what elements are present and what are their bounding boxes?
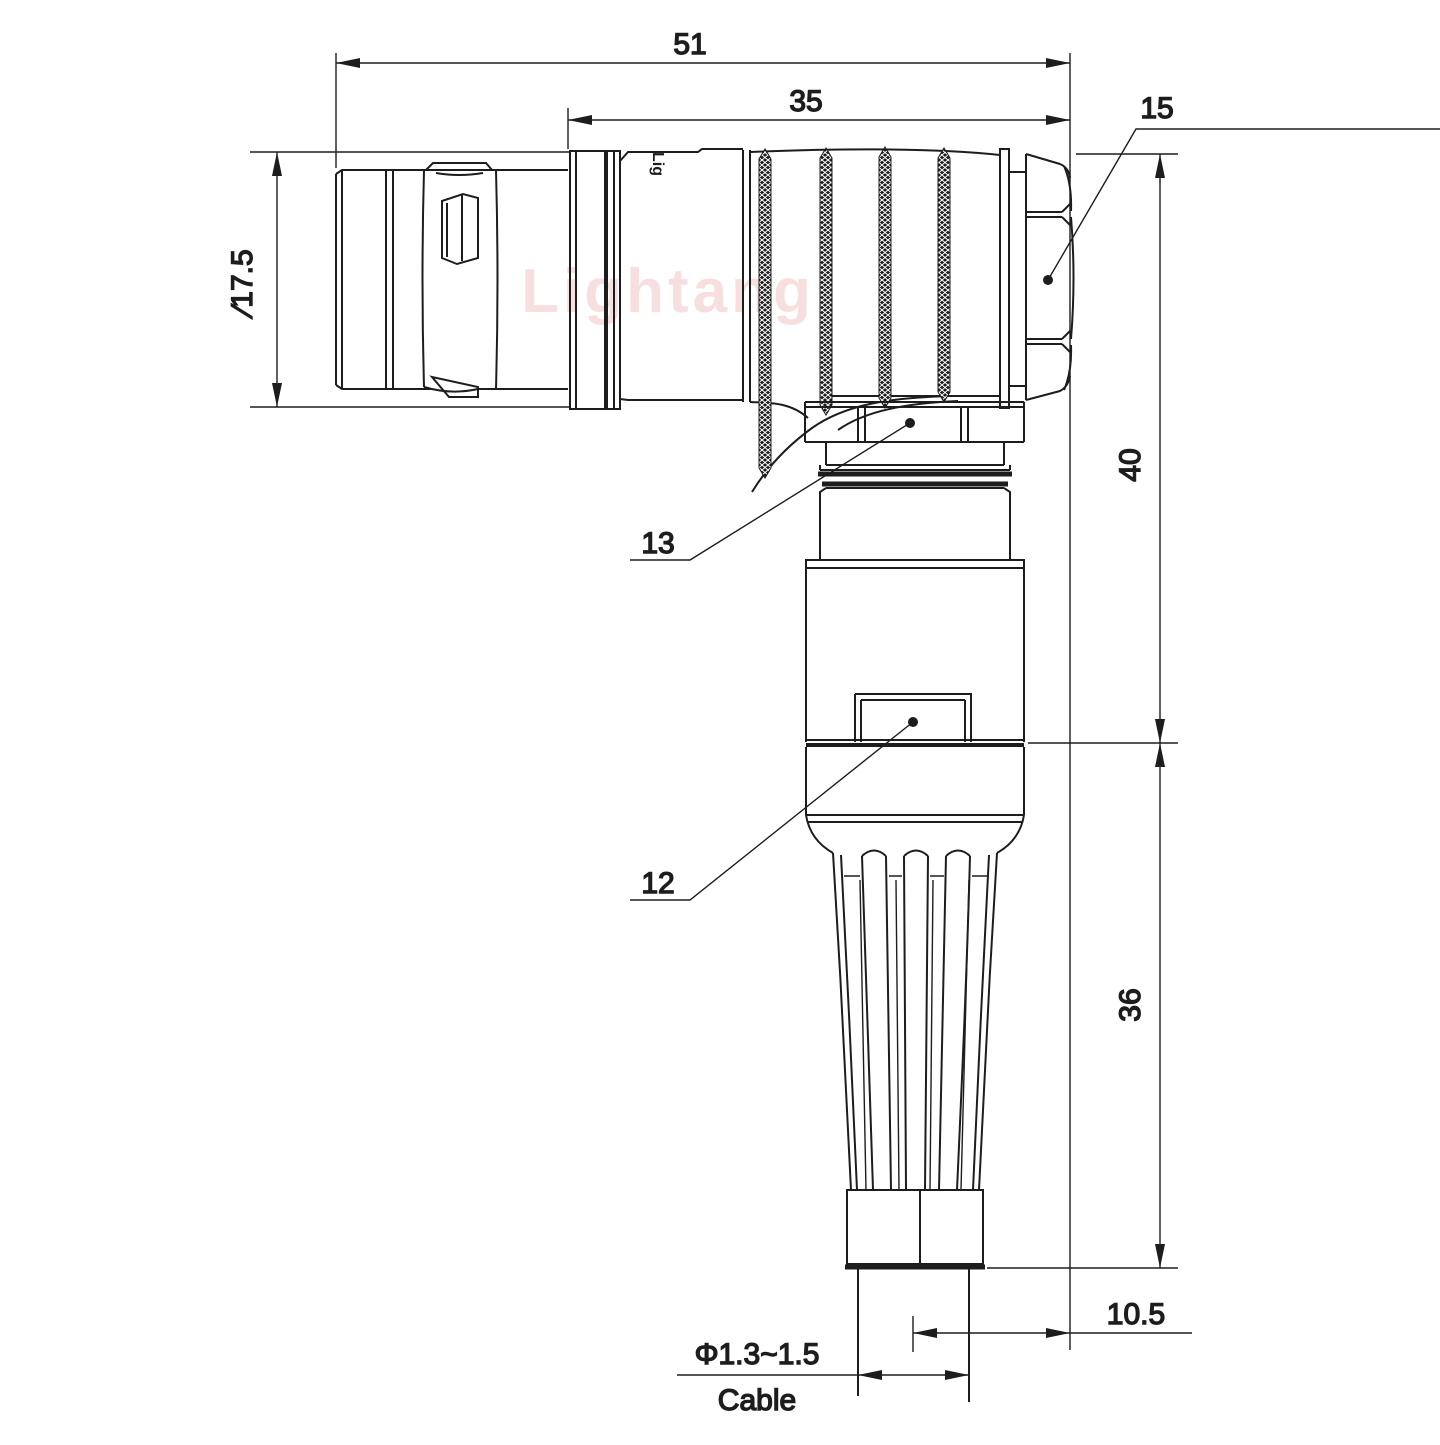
leader-12-dot (908, 717, 918, 727)
flange (806, 560, 1024, 568)
cable-label-text: Cable (718, 1384, 796, 1417)
connector-drawing: Lightang Lig (0, 0, 1440, 1440)
strain-relief (833, 851, 997, 1403)
dim-35-text: 35 (789, 85, 822, 118)
label-13-text: 13 (641, 527, 674, 560)
dim-36-text: 36 (1114, 988, 1147, 1021)
part-leaders: 15 13 12 (630, 92, 1440, 900)
dim-upper-height: 40 (1028, 154, 1178, 743)
knurl-strip-2 (820, 148, 832, 415)
lower-housing (806, 747, 1024, 853)
leader-13-dot (905, 418, 915, 428)
outer-fin-right (973, 853, 997, 1190)
brand-mark-text: Lig (649, 152, 666, 176)
dimensions: 51 35 ∕17.5 40 36 10 (226, 28, 1192, 1417)
label-15-text: 15 (1140, 92, 1173, 125)
knurl-strip-1 (759, 149, 771, 478)
dim-axis-offset: 10.5 (913, 1298, 1192, 1352)
leader-15-line (1048, 129, 1440, 280)
dim-51-text: 51 (673, 28, 706, 61)
leader-15-dot (1043, 275, 1053, 285)
right-angle-body (805, 402, 1024, 853)
dim-cable-diameter: Φ1.3~1.5 Cable (677, 1338, 969, 1417)
dim-barrel-length: 35 (568, 85, 1070, 149)
latch-window (442, 194, 478, 264)
dim-40-line (1028, 154, 1178, 743)
collar (820, 442, 1010, 470)
dim-cable-dia-text: Φ1.3~1.5 (695, 1338, 820, 1371)
knurl-strip-4 (938, 148, 950, 402)
label-12-text: 12 (641, 867, 674, 900)
main-housing (806, 568, 1024, 742)
technical-drawing-canvas: Lightang Lig (0, 0, 1440, 1445)
fin-slat-2 (904, 851, 928, 1191)
fin-slat-1 (862, 851, 891, 1191)
knurl-strip-3 (879, 147, 891, 408)
dim-plug-diameter: ∕17.5 (226, 152, 570, 407)
outer-fin-left (833, 853, 857, 1190)
leader-backnut: 15 (1043, 92, 1440, 285)
o-ring-bands (818, 474, 1012, 484)
dim-d175-text: ∕17.5 (226, 249, 259, 319)
barrel-end-ring (1000, 149, 1026, 408)
dim-40-text: 40 (1114, 448, 1147, 481)
fin-web-lines (844, 876, 987, 1190)
latch-flap (432, 377, 478, 397)
dim-105-text: 10.5 (1107, 1298, 1165, 1331)
upper-cylinder (820, 488, 1010, 560)
end-cap (847, 1190, 983, 1264)
